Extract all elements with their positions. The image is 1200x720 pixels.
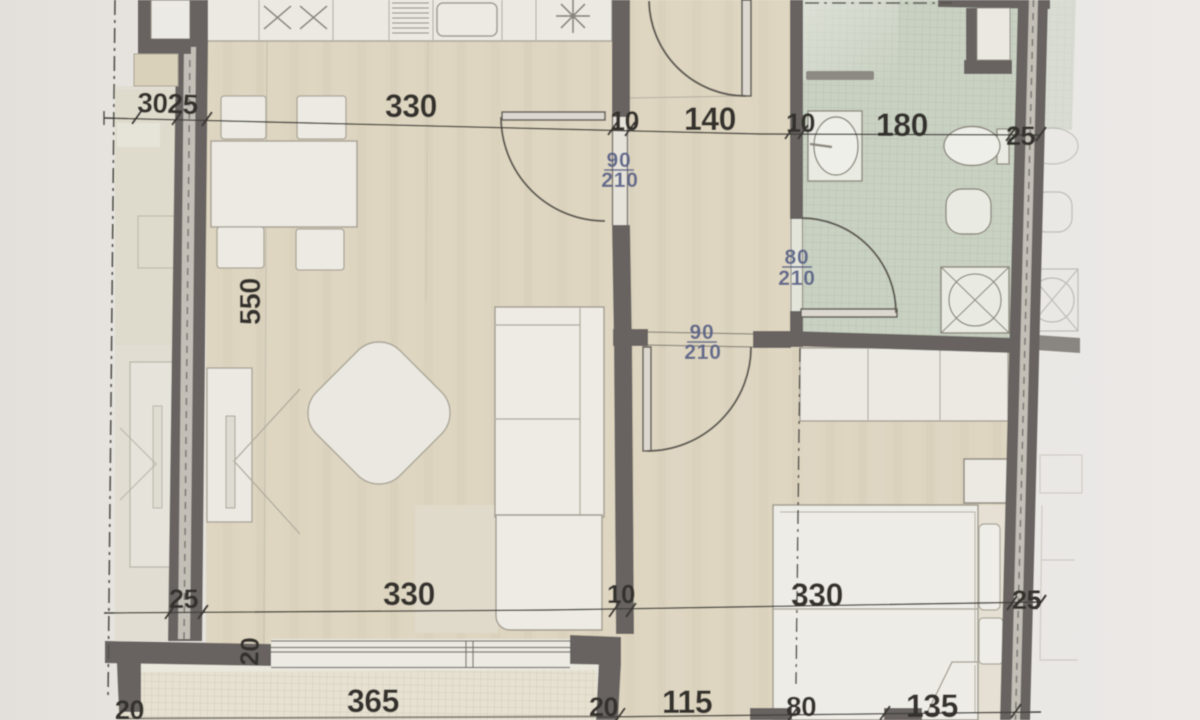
svg-text:135: 135: [906, 688, 958, 720]
svg-text:550: 550: [235, 278, 267, 325]
svg-text:10: 10: [786, 108, 815, 138]
svg-text:80: 80: [785, 246, 810, 269]
svg-text:10: 10: [610, 106, 639, 136]
svg-text:20: 20: [234, 637, 265, 666]
svg-text:210: 210: [778, 267, 815, 290]
svg-text:330: 330: [385, 88, 437, 124]
svg-text:365: 365: [347, 683, 399, 719]
svg-text:25: 25: [1006, 121, 1036, 151]
svg-text:10: 10: [607, 579, 635, 609]
svg-text:210: 210: [601, 169, 638, 192]
svg-text:25: 25: [169, 584, 199, 614]
svg-text:115: 115: [662, 684, 712, 720]
svg-text:20: 20: [115, 695, 144, 720]
svg-text:140: 140: [684, 101, 736, 137]
svg-text:330: 330: [383, 576, 435, 612]
svg-text:25: 25: [1012, 585, 1042, 615]
svg-text:180: 180: [876, 107, 928, 143]
svg-text:3025: 3025: [137, 87, 198, 120]
svg-text:330: 330: [791, 577, 843, 613]
svg-text:20: 20: [589, 692, 618, 720]
svg-text:80: 80: [786, 691, 816, 720]
svg-text:210: 210: [684, 341, 721, 364]
